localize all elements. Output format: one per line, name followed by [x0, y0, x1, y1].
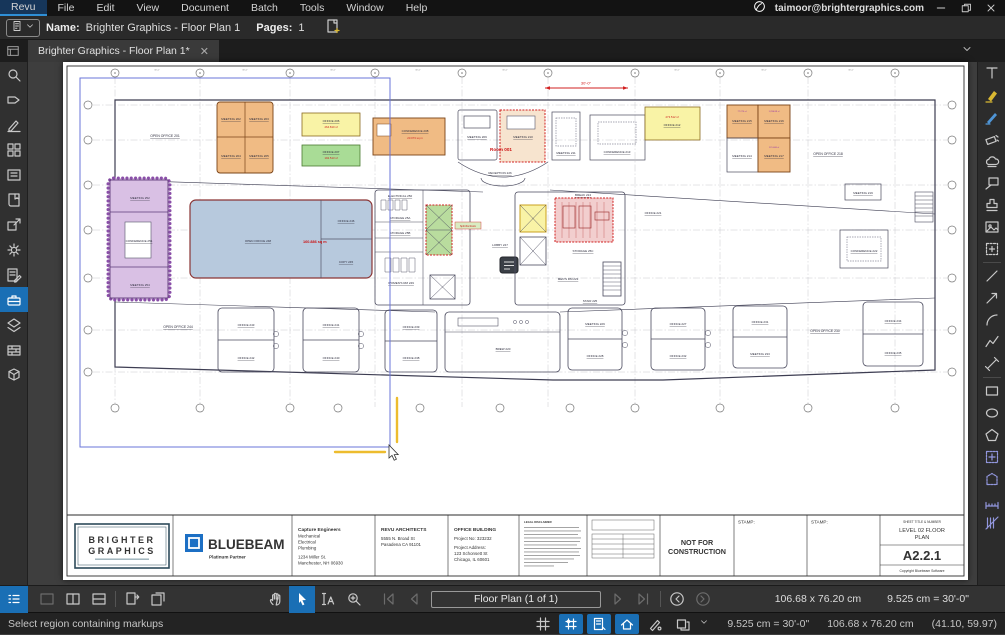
split-horizontal-icon[interactable] — [86, 586, 112, 613]
svg-text:CONFERENCE 208: CONFERENCE 208 — [402, 129, 429, 133]
menu-edit[interactable]: Edit — [85, 0, 125, 16]
revision-table — [592, 520, 654, 558]
svg-text:BLUEBEAM: BLUEBEAM — [208, 537, 285, 552]
svg-text:MEETING 210: MEETING 210 — [513, 135, 533, 139]
svg-text:1234 Miller St.: 1234 Miller St. — [298, 555, 326, 560]
svg-text:CONFERENCE 222: CONFERENCE 222 — [851, 249, 878, 253]
menu-view[interactable]: View — [126, 0, 171, 16]
bay-dimensions: 30'-0" 30'-0" 30'-0" 30'-0" 30'-0" 30'-0… — [154, 70, 854, 72]
menu-document[interactable]: Document — [170, 0, 240, 16]
svg-text:1,296.89 sf: 1,296.89 sf — [769, 111, 780, 113]
conference-222: CONFERENCE 222 — [840, 230, 888, 268]
reuse-markup-icon[interactable] — [643, 614, 667, 634]
grid-toggle-icon[interactable] — [531, 614, 555, 634]
stamp-2-label: STAMP: — [811, 520, 828, 525]
mouse-cursor — [389, 445, 398, 460]
toolbar-divider — [660, 591, 661, 607]
svg-text:A2.2.1: A2.2.1 — [903, 548, 941, 563]
bluebeam-logo: BLUEBEAM Platinum Partner — [185, 534, 285, 560]
open-office-248-markup[interactable]: OPEN OFFICE 248 160.886 sq m OFFICE 246 … — [190, 200, 372, 278]
svg-text:30'-0": 30'-0" — [502, 70, 508, 72]
svg-text:CONFERENCE 213: CONFERENCE 213 — [604, 150, 631, 154]
last-page-button[interactable] — [631, 586, 657, 613]
measure-area-tool-icon[interactable] — [978, 446, 1005, 468]
slip-sheet-icon[interactable] — [145, 586, 171, 613]
svg-text:STAIR 225: STAIR 225 — [583, 299, 598, 303]
sheet-title-cell: SHEET TITLE & NUMBER LEVEL 02 FLOOR PLAN… — [880, 520, 964, 573]
svg-text:OFFICE 207: OFFICE 207 — [323, 150, 340, 154]
svg-text:Platinum Partner: Platinum Partner — [209, 555, 246, 560]
meeting-209: MEETING 209 — [458, 110, 497, 160]
svg-text:OFFICE 228: OFFICE 228 — [587, 354, 604, 358]
page-size-readout: 106.68 x 76.20 cm — [775, 593, 861, 605]
svg-text:BREW 220: BREW 220 — [496, 347, 511, 351]
svg-text:MEETING 203: MEETING 203 — [249, 117, 269, 121]
pages-value: 1 — [298, 22, 304, 34]
line-tool-icon[interactable] — [978, 265, 1005, 287]
conference-213: CONFERENCE 213 — [590, 115, 645, 160]
markup-summary-icon[interactable] — [0, 262, 28, 287]
svg-text:LEGAL DISCLAIMER: LEGAL DISCLAIMER — [524, 520, 552, 524]
svg-text:Capture Engineers: Capture Engineers — [298, 527, 341, 533]
svg-text:Pasadena CA 91101: Pasadena CA 91101 — [381, 542, 422, 547]
pan-tool-icon[interactable] — [263, 586, 289, 613]
svg-text:30'-0": 30'-0" — [242, 70, 248, 72]
svg-text:MEETING 205: MEETING 205 — [249, 154, 269, 158]
office-row-left: OFFICE 243 OFFICE 242 OFFICE 241 OFFICE … — [218, 308, 437, 372]
ellipse-tool-icon[interactable] — [978, 402, 1005, 424]
rail-divider — [983, 377, 1001, 378]
room-label: LOBBY 247 — [492, 243, 508, 247]
svg-text:PLAN: PLAN — [915, 535, 930, 541]
eraser-tool-icon[interactable] — [978, 128, 1005, 150]
svg-text:MEETING 229: MEETING 229 — [585, 322, 605, 326]
engineer-block: Capture Engineers Mechanical Electrical … — [298, 527, 343, 566]
studio-icon[interactable] — [0, 337, 28, 362]
page-menu-button[interactable] — [6, 19, 40, 37]
status-cursor-coords: (41.10, 59.97) — [932, 618, 997, 630]
tab-options-chevron-icon[interactable] — [961, 42, 973, 60]
properties-tag-icon[interactable] — [0, 87, 28, 112]
office-row-right: MEETING 229 OFFICE 228 OFFICE 227 OFFICE… — [568, 302, 923, 370]
measure-perimeter-tool-icon[interactable] — [978, 468, 1005, 490]
project-block: OFFICE BUILDING Project No: 323232 Proje… — [454, 527, 496, 562]
svg-text:GRAPHICS: GRAPHICS — [88, 546, 156, 556]
rail-divider — [983, 262, 1001, 263]
svg-text:OFFICE 232: OFFICE 232 — [670, 354, 687, 358]
architect-block: REVU ARCHITECTS 5555 N. Broad St Pasaden… — [381, 527, 427, 547]
status-page-size: 106.68 x 76.20 cm — [827, 618, 913, 630]
svg-text:MEETING 233: MEETING 233 — [750, 352, 770, 356]
arrow-tool-icon[interactable] — [978, 287, 1005, 309]
svg-text:COPY 245: COPY 245 — [339, 260, 354, 264]
bottom-toolbar: Floor Plan (1 of 1) 106.68 x 76.20 cm 9.… — [0, 585, 1005, 612]
insert-page-button[interactable] — [325, 18, 341, 37]
svg-text:OFFICE 238: OFFICE 238 — [403, 356, 420, 360]
svg-text:OFFICE 234: OFFICE 234 — [885, 319, 902, 323]
snap-to-grid-icon[interactable] — [559, 614, 583, 634]
first-page-button[interactable] — [375, 586, 401, 613]
svg-text:STORAGE 25A: STORAGE 25A — [390, 216, 411, 220]
pen-tool-icon[interactable] — [978, 106, 1005, 128]
svg-text:REVU ARCHITECTS: REVU ARCHITECTS — [381, 527, 427, 533]
svg-text:OFFICE 241: OFFICE 241 — [323, 323, 340, 327]
room-001-label: Room 001 — [490, 147, 512, 152]
svg-text:MEN'S RM 223: MEN'S RM 223 — [558, 277, 579, 281]
red-dimension-markup[interactable]: 30'-0" — [545, 81, 628, 90]
conference-208: CONFERENCE 208 23.073 sq m — [373, 118, 445, 155]
legal-block: LEGAL DISCLAIMER — [524, 520, 581, 566]
markup-tool-rail — [977, 62, 1005, 585]
signature-icon[interactable] — [0, 112, 28, 137]
revu-window: Revu File Edit View Document Batch Tools… — [0, 0, 1005, 635]
svg-text:WOMEN'S RM 249: WOMEN'S RM 249 — [388, 281, 414, 285]
links-icon[interactable] — [0, 212, 28, 237]
rectangle-tool-icon[interactable] — [978, 380, 1005, 402]
svg-text:Plumbing: Plumbing — [298, 546, 317, 551]
svg-text:OFFICE 206: OFFICE 206 — [323, 119, 340, 123]
svg-text:OFFICE 227: OFFICE 227 — [670, 322, 687, 326]
window-maximize-button[interactable] — [958, 1, 974, 15]
page-indicator[interactable]: Floor Plan (1 of 1) — [431, 591, 601, 608]
svg-text:MEETING 216: MEETING 216 — [764, 119, 784, 123]
snap-to-content-icon[interactable] — [587, 614, 611, 634]
zoom-tool-icon[interactable] — [341, 586, 367, 613]
cloud-tool-icon[interactable] — [978, 150, 1005, 172]
yellow-line-markups[interactable] — [335, 398, 397, 452]
menu-window[interactable]: Window — [335, 0, 394, 16]
office-206: OFFICE 206 264.810 sf — [302, 113, 360, 136]
status-message: Select region containing markups — [8, 618, 163, 630]
select-tool-icon[interactable] — [289, 586, 315, 613]
brew-room: BREW 220 — [445, 312, 560, 372]
measure-length-tool-icon[interactable] — [978, 490, 1005, 512]
svg-text:MEETING 215: MEETING 215 — [732, 119, 752, 123]
svg-text:MEETING 202: MEETING 202 — [221, 117, 241, 121]
svg-text:CONFERENCE 251: CONFERENCE 251 — [126, 239, 153, 243]
floor-plan-sheet: 30'-0" 30'-0" 30'-0" 30'-0" 30'-0" 30'-0… — [63, 62, 968, 580]
core-left: STORAGE 25A STORAGE 25B ELECTRICAL 250 W… — [375, 190, 470, 305]
polyline-tool-icon[interactable] — [978, 331, 1005, 353]
meeting-block-right: 77.276 sf MEETING 215 1,296.89 sf MEETIN… — [727, 105, 790, 172]
svg-text:BREAK 224: BREAK 224 — [575, 193, 591, 197]
svg-text:30'-0": 30'-0" — [415, 70, 421, 72]
svg-text:264.810 sf: 264.810 sf — [324, 125, 337, 129]
snap-to-markup-icon[interactable] — [615, 614, 639, 634]
menu-bar: Revu File Edit View Document Batch Tools… — [0, 0, 1005, 16]
chevron-down-icon — [25, 21, 35, 34]
svg-text:5555 N. Broad St: 5555 N. Broad St — [381, 536, 415, 541]
svg-text:192.513 sf: 192.513 sf — [324, 156, 337, 160]
next-view-button[interactable] — [690, 586, 716, 613]
tab-close-icon[interactable]: ✕ — [200, 45, 209, 58]
svg-text:STORAGE 25C: STORAGE 25C — [573, 249, 595, 253]
svg-text:30'-0": 30'-0" — [154, 70, 160, 72]
office-207: OFFICE 207 192.513 sf — [302, 145, 360, 166]
svg-text:30'-0": 30'-0" — [674, 70, 680, 72]
svg-text:MEETING 204: MEETING 204 — [221, 154, 241, 158]
meeting-block-left: MEETING 202 MEETING 203 MEETING 204 MEET… — [217, 102, 273, 173]
pages-label: Pages: — [256, 22, 292, 34]
status-scale: 9.525 cm = 30'-0" — [727, 618, 809, 630]
area-label: 160.886 sq m — [303, 240, 327, 244]
drawing-canvas[interactable]: 30'-0" 30'-0" 30'-0" 30'-0" 30'-0" 30'-0… — [28, 62, 977, 585]
menu-file[interactable]: File — [47, 0, 86, 16]
meeting-211: MEETING 211 — [552, 112, 580, 160]
spaces-icon[interactable] — [0, 362, 28, 387]
scale-readout: 9.525 cm = 30'-0" — [887, 593, 969, 605]
svg-text:MEETING 252: MEETING 252 — [130, 196, 150, 200]
svg-text:NOT FOR: NOT FOR — [681, 538, 714, 547]
svg-text:MEETING 214: MEETING 214 — [732, 154, 752, 158]
svg-text:MEETING 209: MEETING 209 — [467, 135, 487, 139]
svg-text:OPEN OFFICE 230: OPEN OFFICE 230 — [810, 329, 840, 333]
svg-text:OFFICE 240: OFFICE 240 — [323, 356, 340, 360]
select-text-tool-icon[interactable] — [315, 586, 341, 613]
menu-tools[interactable]: Tools — [289, 0, 336, 16]
title-block: BRIGHTER GRAPHICS BLUEBEAM Platinum Part… — [67, 515, 964, 576]
svg-text:30'-0": 30'-0" — [848, 70, 854, 72]
not-for-construction: NOT FOR CONSTRUCTION — [668, 538, 726, 556]
window-minimize-button[interactable] — [933, 1, 949, 15]
svg-text:LEVEL 02 FLOOR: LEVEL 02 FLOOR — [899, 528, 945, 534]
svg-text:Mechanical: Mechanical — [298, 534, 320, 539]
svg-text:OFFICE 239: OFFICE 239 — [403, 325, 420, 329]
svg-text:Chicago, IL 60601: Chicago, IL 60601 — [454, 557, 490, 562]
tool-chest-icon[interactable] — [0, 287, 28, 312]
settings-gear-icon[interactable] — [0, 237, 28, 262]
room-label: OPEN OFFICE 201 — [150, 134, 180, 138]
elevator-yellow-markup[interactable] — [520, 205, 546, 232]
toolbar-divider — [115, 591, 116, 607]
svg-text:121.468 sf: 121.468 sf — [769, 147, 780, 149]
revu-logo-icon — [753, 0, 766, 16]
split-vertical-icon[interactable] — [60, 586, 86, 613]
svg-text:OFFICE 235: OFFICE 235 — [885, 351, 902, 355]
status-chevron-icon[interactable] — [699, 617, 709, 630]
svg-text:RECEPTION 226: RECEPTION 226 — [488, 171, 512, 175]
thumbnails-icon[interactable] — [0, 137, 28, 162]
svg-text:Project Address:: Project Address: — [454, 545, 486, 550]
name-label: Name: — [46, 22, 80, 34]
single-pane-icon[interactable] — [34, 586, 60, 613]
status-bar: Select region containing markups 9.525 c… — [0, 612, 1005, 634]
bookmarks-icon[interactable] — [0, 162, 28, 187]
sync-views-icon[interactable] — [671, 614, 695, 634]
svg-text:MEETING 219: MEETING 219 — [853, 191, 873, 195]
svg-text:MEETING 254: MEETING 254 — [130, 283, 150, 287]
svg-text:OFFICE 246: OFFICE 246 — [338, 219, 355, 223]
page-icon — [11, 20, 23, 35]
svg-text:MEETING 211: MEETING 211 — [556, 151, 576, 155]
svg-text:CONSTRUCTION: CONSTRUCTION — [668, 547, 726, 556]
stair-right — [915, 192, 933, 222]
svg-text:ELECTRICAL 250: ELECTRICAL 250 — [388, 194, 413, 198]
document-name: Brighter Graphics - Floor Plan 1 — [86, 22, 241, 34]
meeting-219: MEETING 219 — [845, 184, 881, 200]
stamp-1-label: STAMP: — [738, 520, 755, 525]
svg-text:Project No: 323232: Project No: 323232 — [454, 536, 492, 541]
callout-tool-icon[interactable] — [978, 172, 1005, 194]
main-area: 30'-0" 30'-0" 30'-0" 30'-0" 30'-0" 30'-0… — [0, 62, 1005, 585]
svg-text:STORAGE 25B: STORAGE 25B — [390, 231, 411, 235]
search-icon[interactable] — [0, 62, 28, 87]
page-setup-icon[interactable] — [119, 586, 145, 613]
svg-text:OFFICE 243: OFFICE 243 — [238, 323, 255, 327]
svg-text:Copyright Bluebeam Software: Copyright Bluebeam Software — [899, 569, 944, 573]
office-212: 273.512 sf OFFICE 212 — [645, 107, 700, 140]
svg-text:273.512 sf: 273.512 sf — [665, 115, 678, 119]
layers-icon[interactable] — [0, 312, 28, 337]
markups-list-toggle[interactable] — [0, 586, 28, 613]
room-label: OFFICE 221 — [645, 211, 662, 215]
svg-text:OFFICE 242: OFFICE 242 — [238, 356, 255, 360]
polygon-tool-icon[interactable] — [978, 424, 1005, 446]
svg-text:BRIGHTER: BRIGHTER — [89, 535, 156, 545]
document-tab[interactable]: Brighter Graphics - Floor Plan 1* ✕ — [28, 40, 219, 62]
split-room-label: Split this Room — [460, 225, 476, 228]
svg-text:23.073 sq m: 23.073 sq m — [407, 136, 423, 140]
svg-text:77.276 sf: 77.276 sf — [738, 111, 747, 113]
svg-text:OPEN OFFICE 248: OPEN OFFICE 248 — [245, 239, 272, 243]
document-bar: Name: Brighter Graphics - Floor Plan 1 P… — [0, 16, 1005, 40]
menu-batch[interactable]: Batch — [240, 0, 289, 16]
svg-text:123 Schonsett St: 123 Schonsett St — [454, 551, 488, 556]
image-tool-icon[interactable] — [978, 216, 1005, 238]
svg-text:SHEET TITLE & NUMBER: SHEET TITLE & NUMBER — [903, 520, 941, 524]
svg-text:OFFICE 212: OFFICE 212 — [664, 123, 681, 127]
window-close-button[interactable] — [983, 1, 999, 15]
svg-text:Manchester, NH 06930: Manchester, NH 06930 — [298, 561, 343, 566]
svg-text:OFFICE 231: OFFICE 231 — [752, 320, 769, 324]
tab-title: Brighter Graphics - Floor Plan 1* — [38, 45, 190, 57]
svg-text:MEETING 217: MEETING 217 — [764, 154, 784, 158]
clouded-region-markup[interactable]: MEETING 252 CONFERENCE 251 MEETING 254 — [108, 178, 170, 300]
dimension-tool-icon[interactable] — [978, 353, 1005, 375]
svg-text:OFFICE BUILDING: OFFICE BUILDING — [454, 527, 496, 533]
menu-revu[interactable]: Revu — [0, 0, 47, 16]
highlighter-tool-icon[interactable] — [978, 84, 1005, 106]
stamp-tool-icon[interactable] — [978, 194, 1005, 216]
user-email: taimoor@brightergraphics.com — [775, 3, 924, 14]
left-panel-rail — [0, 62, 28, 585]
svg-text:30'-0": 30'-0" — [330, 70, 336, 72]
room-label: OPEN OFFICE 244 — [163, 325, 193, 329]
text-tool-icon[interactable] — [978, 62, 1005, 84]
previous-view-button[interactable] — [664, 586, 690, 613]
svg-text:Electrical: Electrical — [298, 540, 316, 545]
reception-area: RECEPTION 226 — [458, 162, 548, 186]
tab-bar: Brighter Graphics - Floor Plan 1* ✕ — [0, 40, 1005, 62]
room-label: OPEN OFFICE 218 — [813, 152, 843, 156]
tab-panel-icon[interactable] — [0, 40, 26, 62]
previous-page-button[interactable] — [401, 586, 427, 613]
measure-count-tool-icon[interactable] — [978, 512, 1005, 534]
menu-help[interactable]: Help — [395, 0, 439, 16]
svg-text:30'-0": 30'-0" — [581, 81, 592, 86]
svg-text:30'-0": 30'-0" — [761, 70, 767, 72]
room-001-markup[interactable]: MEETING 210 Room 001 — [490, 110, 545, 162]
file-access-icon[interactable] — [0, 187, 28, 212]
arc-tool-icon[interactable] — [978, 309, 1005, 331]
next-page-button[interactable] — [605, 586, 631, 613]
snapshot-tool-icon[interactable] — [978, 238, 1005, 260]
break-room-markup[interactable]: BREAK 224 — [555, 193, 613, 242]
